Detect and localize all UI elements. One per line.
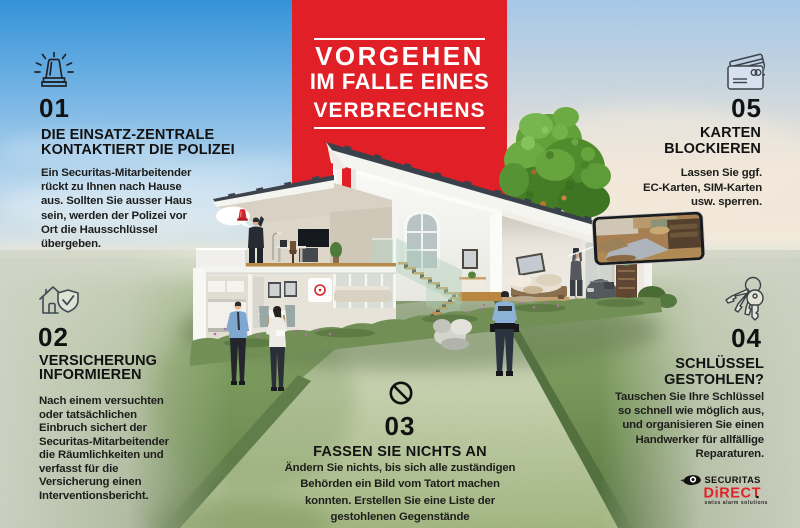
svg-text:SECURITAS: SECURITAS xyxy=(705,475,761,485)
svg-text:swiss alarm solutions: swiss alarm solutions xyxy=(705,500,769,506)
